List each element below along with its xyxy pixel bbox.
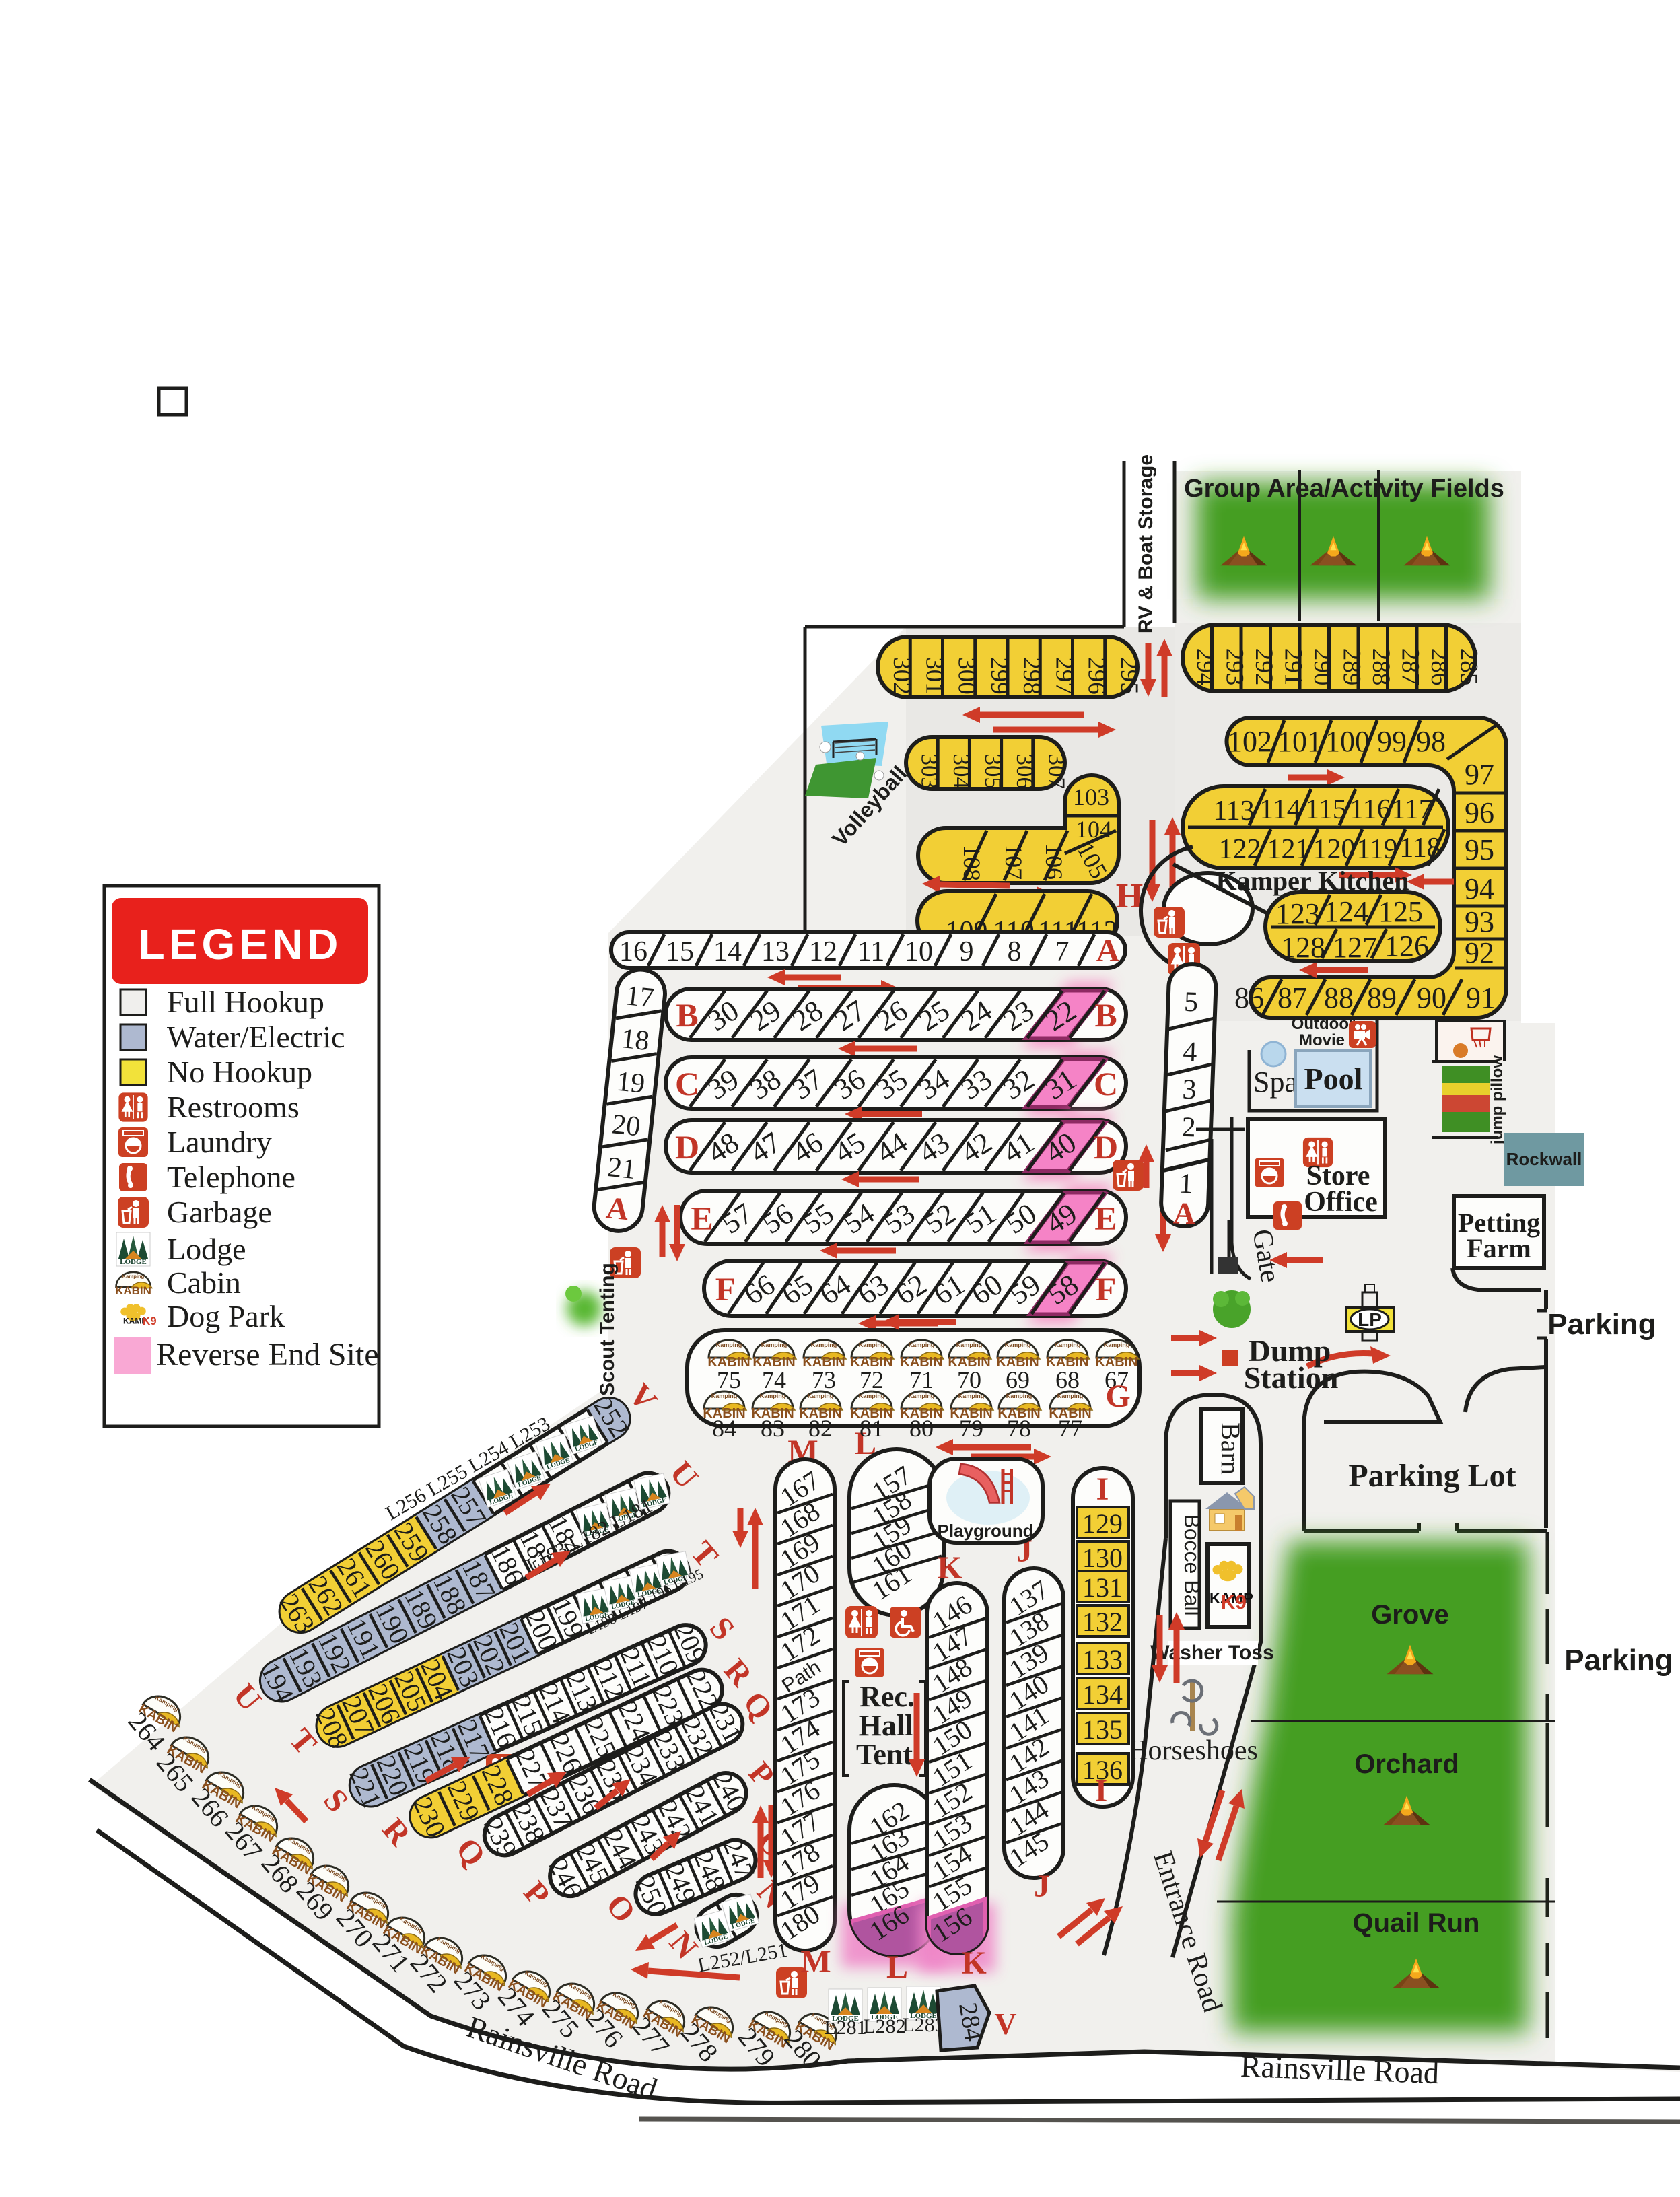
svg-text:Playground: Playground [937, 1521, 1033, 1541]
svg-text:Movie: Movie [1299, 1031, 1345, 1049]
svg-text:132: 132 [1082, 1607, 1123, 1637]
svg-text:Cabin: Cabin [167, 1265, 241, 1300]
svg-text:9: 9 [960, 936, 974, 967]
svg-text:73: 73 [812, 1366, 836, 1393]
svg-text:Group Area/Activity Fields: Group Area/Activity Fields [1184, 475, 1504, 503]
svg-text:D: D [675, 1128, 699, 1166]
svg-text:113: 113 [1213, 796, 1254, 827]
svg-text:103: 103 [1073, 783, 1109, 810]
svg-text:12: 12 [809, 936, 837, 967]
svg-text:122: 122 [1219, 834, 1261, 865]
svg-text:Washer Toss: Washer Toss [1150, 1642, 1273, 1664]
svg-text:288: 288 [1367, 648, 1395, 686]
svg-text:K: K [961, 1945, 986, 1981]
svg-text:Office: Office [1304, 1187, 1378, 1218]
svg-text:K9: K9 [143, 1315, 157, 1327]
svg-text:134: 134 [1082, 1679, 1123, 1710]
svg-text:92: 92 [1465, 936, 1494, 969]
svg-text:120: 120 [1313, 834, 1356, 865]
svg-text:Barn: Barn [1216, 1422, 1246, 1475]
svg-text:72: 72 [860, 1366, 884, 1393]
svg-text:Rainsville Road: Rainsville Road [1240, 2049, 1440, 2090]
svg-text:Grove: Grove [1371, 1600, 1449, 1630]
svg-text:298: 298 [1018, 657, 1045, 694]
svg-text:297: 297 [1050, 657, 1078, 694]
svg-text:118: 118 [1399, 833, 1440, 864]
svg-text:A: A [604, 1190, 630, 1226]
svg-text:93: 93 [1465, 905, 1494, 938]
svg-text:290: 290 [1308, 648, 1336, 686]
svg-text:84: 84 [712, 1415, 736, 1442]
svg-text:126: 126 [1385, 930, 1429, 963]
svg-text:Station: Station [1244, 1360, 1339, 1395]
svg-text:I: I [1096, 1471, 1109, 1507]
svg-text:107: 107 [1000, 843, 1027, 880]
svg-text:Dog Park: Dog Park [167, 1299, 285, 1333]
svg-text:102: 102 [1228, 725, 1272, 758]
svg-text:292: 292 [1250, 648, 1277, 686]
svg-text:299: 299 [985, 657, 1013, 694]
svg-text:G: G [1105, 1379, 1130, 1414]
svg-text:L282: L282 [863, 2015, 905, 2037]
svg-text:71: 71 [909, 1366, 934, 1393]
svg-text:131: 131 [1082, 1572, 1123, 1603]
svg-text:7: 7 [1055, 936, 1070, 967]
svg-text:306: 306 [1012, 754, 1038, 790]
svg-text:1: 1 [1179, 1169, 1194, 1200]
svg-text:Kamper Kitchen: Kamper Kitchen [1216, 866, 1409, 896]
svg-text:286: 286 [1426, 648, 1453, 686]
svg-text:100: 100 [1325, 725, 1370, 758]
svg-text:130: 130 [1082, 1543, 1123, 1573]
svg-text:jump pillow: jump pillow [1488, 1055, 1506, 1145]
svg-text:Pool: Pool [1304, 1061, 1363, 1096]
svg-text:77: 77 [1058, 1415, 1082, 1442]
svg-text:80: 80 [909, 1415, 934, 1442]
svg-text:287: 287 [1396, 648, 1424, 686]
svg-text:117: 117 [1391, 794, 1432, 825]
svg-text:21: 21 [606, 1152, 637, 1185]
svg-text:97: 97 [1465, 758, 1494, 791]
svg-text:L: L [886, 1949, 908, 1985]
svg-text:Laundry: Laundry [167, 1125, 272, 1159]
svg-text:Outdoor: Outdoor [1292, 1015, 1356, 1033]
svg-text:133: 133 [1082, 1644, 1123, 1675]
svg-text:75: 75 [717, 1366, 741, 1393]
svg-text:307: 307 [1043, 754, 1070, 790]
svg-text:87: 87 [1277, 981, 1307, 1014]
svg-text:78: 78 [1007, 1415, 1031, 1442]
svg-text:302: 302 [888, 657, 915, 694]
svg-text:119: 119 [1356, 834, 1397, 865]
svg-text:Farm: Farm [1467, 1233, 1531, 1263]
svg-text:A: A [1172, 1195, 1196, 1230]
svg-text:Horseshoes: Horseshoes [1127, 1735, 1258, 1766]
svg-text:101: 101 [1277, 725, 1322, 758]
svg-text:K9: K9 [1221, 1591, 1247, 1613]
svg-text:C: C [1094, 1065, 1118, 1103]
svg-text:B: B [1094, 996, 1117, 1034]
svg-text:74: 74 [762, 1366, 786, 1393]
svg-text:B: B [676, 996, 698, 1034]
svg-text:11: 11 [858, 936, 884, 967]
svg-text:124: 124 [1324, 895, 1368, 928]
svg-text:94: 94 [1465, 872, 1494, 905]
svg-text:Parking: Parking [1564, 1644, 1673, 1677]
svg-text:300: 300 [953, 657, 981, 694]
svg-text:129: 129 [1082, 1508, 1123, 1539]
svg-text:3: 3 [1182, 1074, 1197, 1106]
svg-text:301: 301 [920, 657, 948, 694]
svg-text:Rec.: Rec. [860, 1680, 915, 1713]
svg-text:116: 116 [1350, 794, 1391, 825]
svg-text:16: 16 [619, 936, 647, 967]
svg-text:I: I [1095, 1773, 1108, 1809]
svg-text:Reverse End Site: Reverse End Site [156, 1337, 379, 1372]
svg-text:81: 81 [860, 1415, 884, 1442]
svg-text:68: 68 [1055, 1366, 1080, 1393]
svg-text:70: 70 [957, 1366, 981, 1393]
svg-text:17: 17 [624, 980, 656, 1014]
svg-text:Tent: Tent [856, 1738, 913, 1771]
svg-text:121: 121 [1267, 834, 1310, 865]
svg-text:303: 303 [917, 754, 943, 790]
svg-text:125: 125 [1378, 895, 1423, 928]
svg-text:135: 135 [1082, 1714, 1123, 1745]
svg-text:127: 127 [1333, 931, 1377, 964]
svg-text:291: 291 [1279, 648, 1306, 686]
svg-text:LEGEND: LEGEND [139, 920, 343, 969]
svg-text:296: 296 [1083, 657, 1111, 694]
svg-text:99: 99 [1377, 725, 1407, 758]
svg-text:L281: L281 [824, 2017, 866, 2039]
svg-text:J: J [1034, 1869, 1050, 1904]
svg-text:106: 106 [1041, 843, 1067, 880]
svg-text:88: 88 [1324, 981, 1354, 1014]
svg-text:RV & Boat Storage: RV & Boat Storage [1135, 454, 1157, 633]
svg-text:V: V [994, 2007, 1016, 2041]
svg-text:8: 8 [1008, 936, 1022, 967]
svg-text:Lodge: Lodge [167, 1232, 246, 1266]
svg-text:294: 294 [1191, 648, 1219, 686]
svg-text:Rockwall: Rockwall [1506, 1149, 1582, 1169]
svg-text:115: 115 [1305, 794, 1346, 825]
svg-text:C: C [675, 1065, 699, 1103]
svg-text:304: 304 [948, 754, 975, 790]
svg-text:15: 15 [666, 936, 694, 967]
svg-text:M: M [800, 1944, 831, 1980]
svg-text:95: 95 [1465, 833, 1494, 866]
svg-text:98: 98 [1416, 725, 1446, 758]
svg-text:K: K [937, 1550, 962, 1586]
svg-text:A: A [1096, 933, 1120, 969]
svg-text:Quail Run: Quail Run [1353, 1908, 1480, 1938]
svg-text:295: 295 [1115, 657, 1143, 694]
svg-text:Full Hookup: Full Hookup [167, 985, 324, 1019]
svg-text:293: 293 [1220, 648, 1248, 686]
svg-text:Parking: Parking [1547, 1308, 1656, 1341]
svg-text:2: 2 [1181, 1112, 1197, 1144]
svg-text:Orchard: Orchard [1354, 1749, 1459, 1779]
svg-text:E: E [691, 1199, 713, 1237]
svg-text:Parking Lot: Parking Lot [1348, 1458, 1516, 1494]
svg-text:Spa: Spa [1253, 1066, 1298, 1098]
svg-text:20: 20 [610, 1109, 642, 1142]
svg-text:108: 108 [958, 845, 985, 881]
svg-text:Bocce Ball: Bocce Ball [1180, 1514, 1204, 1615]
svg-text:83: 83 [761, 1415, 785, 1442]
svg-text:285: 285 [1455, 648, 1482, 686]
svg-text:89: 89 [1367, 981, 1397, 1014]
svg-text:82: 82 [808, 1415, 833, 1442]
svg-text:D: D [1094, 1128, 1118, 1166]
svg-text:Telephone: Telephone [167, 1160, 295, 1194]
svg-text:F: F [715, 1270, 736, 1308]
svg-text:305: 305 [980, 754, 1006, 790]
svg-text:Water/Electric: Water/Electric [167, 1020, 345, 1054]
svg-text:86: 86 [1234, 981, 1264, 1014]
svg-text:Garbage: Garbage [167, 1195, 272, 1229]
svg-text:90: 90 [1417, 981, 1446, 1014]
svg-text:4: 4 [1183, 1037, 1198, 1068]
svg-text:13: 13 [761, 936, 790, 967]
svg-text:19: 19 [615, 1066, 647, 1100]
svg-text:F: F [1096, 1270, 1117, 1308]
svg-text:79: 79 [959, 1415, 983, 1442]
svg-text:5: 5 [1183, 987, 1199, 1018]
svg-text:96: 96 [1465, 796, 1494, 829]
svg-text:Scout Tenting: Scout Tenting [596, 1263, 619, 1396]
svg-text:289: 289 [1337, 648, 1365, 686]
svg-text:128: 128 [1281, 931, 1325, 964]
svg-text:Hall: Hall [859, 1709, 913, 1742]
svg-text:LP: LP [1358, 1309, 1382, 1330]
svg-text:114: 114 [1259, 794, 1300, 825]
svg-text:123: 123 [1275, 897, 1320, 930]
svg-text:18: 18 [619, 1023, 651, 1057]
svg-text:14: 14 [713, 936, 742, 967]
svg-text:10: 10 [905, 936, 933, 967]
svg-text:69: 69 [1006, 1366, 1030, 1393]
svg-text:Restrooms: Restrooms [167, 1090, 300, 1124]
svg-text:E: E [1094, 1199, 1117, 1237]
svg-text:No Hookup: No Hookup [167, 1055, 312, 1089]
svg-text:91: 91 [1466, 981, 1496, 1014]
